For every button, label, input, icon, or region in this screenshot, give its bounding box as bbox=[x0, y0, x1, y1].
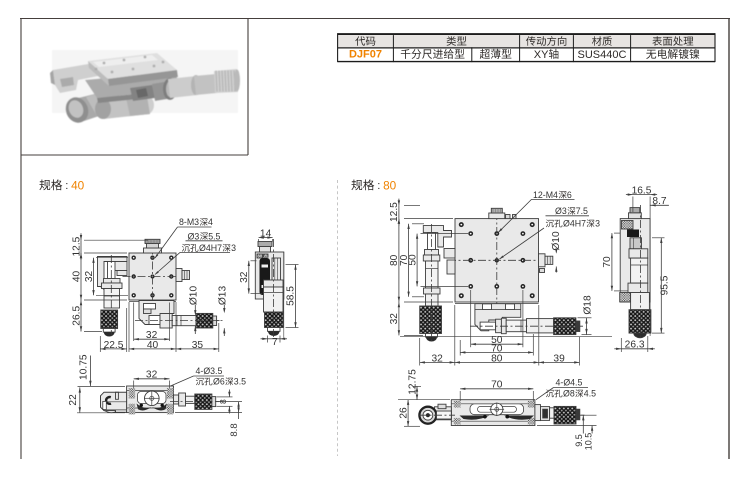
svg-text:Ø13: Ø13 bbox=[218, 286, 229, 306]
svg-text:22: 22 bbox=[68, 394, 79, 406]
svg-text:26: 26 bbox=[398, 407, 409, 419]
svg-text:DJF07: DJF07 bbox=[349, 49, 382, 61]
svg-text:3.5: 3.5 bbox=[234, 377, 246, 387]
svg-text:3: 3 bbox=[595, 219, 600, 229]
svg-text:32: 32 bbox=[432, 353, 444, 364]
svg-text:Ø4H7: Ø4H7 bbox=[199, 243, 222, 253]
svg-text:Ø4H7: Ø4H7 bbox=[563, 219, 586, 229]
svg-text:SUS440C: SUS440C bbox=[578, 49, 627, 61]
svg-text:4.5: 4.5 bbox=[584, 389, 596, 399]
svg-text:22.5: 22.5 bbox=[104, 340, 124, 351]
svg-text:16.5: 16.5 bbox=[632, 186, 652, 197]
svg-text:32: 32 bbox=[146, 370, 158, 381]
svg-text:8.7: 8.7 bbox=[652, 196, 666, 207]
svg-text:95.5: 95.5 bbox=[660, 275, 671, 295]
svg-text:4-Ø3.5: 4-Ø3.5 bbox=[196, 366, 223, 376]
svg-text:80: 80 bbox=[491, 353, 503, 364]
svg-text:70: 70 bbox=[491, 380, 503, 391]
svg-text:40: 40 bbox=[71, 271, 82, 283]
svg-text:32: 32 bbox=[84, 271, 95, 283]
svg-text:32: 32 bbox=[239, 271, 250, 283]
svg-text:70: 70 bbox=[602, 256, 613, 268]
svg-text:Ø3: Ø3 bbox=[555, 206, 567, 216]
svg-text:Ø6: Ø6 bbox=[213, 377, 225, 387]
svg-text:32: 32 bbox=[389, 313, 400, 325]
svg-text:7: 7 bbox=[272, 337, 278, 348]
svg-text:14: 14 bbox=[260, 228, 272, 239]
svg-text:8-M3: 8-M3 bbox=[179, 217, 199, 227]
svg-text:7.5: 7.5 bbox=[576, 206, 588, 216]
svg-text:32: 32 bbox=[146, 330, 158, 341]
svg-text:Ø3: Ø3 bbox=[188, 231, 200, 241]
svg-text:6: 6 bbox=[567, 190, 572, 200]
svg-text:39: 39 bbox=[553, 353, 565, 364]
svg-text:58.5: 58.5 bbox=[286, 286, 297, 306]
svg-text:4: 4 bbox=[208, 217, 213, 227]
svg-text:12-M4: 12-M4 bbox=[533, 190, 558, 200]
svg-text:Ø10: Ø10 bbox=[551, 231, 562, 251]
svg-text:35: 35 bbox=[192, 340, 204, 351]
svg-text:80: 80 bbox=[383, 178, 397, 192]
svg-text:10.5: 10.5 bbox=[583, 433, 593, 451]
svg-text:12.75: 12.75 bbox=[407, 369, 418, 395]
svg-text:5.5: 5.5 bbox=[208, 231, 220, 241]
svg-text:Ø8: Ø8 bbox=[563, 389, 575, 399]
svg-text:10.75: 10.75 bbox=[78, 354, 89, 380]
svg-text::: : bbox=[377, 180, 380, 192]
svg-text:40: 40 bbox=[71, 178, 85, 192]
svg-text:XY: XY bbox=[534, 49, 549, 61]
svg-text:3: 3 bbox=[231, 243, 236, 253]
svg-text:Ø18: Ø18 bbox=[582, 295, 593, 315]
svg-text:Ø10: Ø10 bbox=[189, 286, 200, 306]
svg-text:40: 40 bbox=[147, 340, 159, 351]
svg-text::: : bbox=[65, 180, 68, 192]
svg-text:50: 50 bbox=[407, 254, 418, 266]
svg-text:8.8: 8.8 bbox=[229, 423, 240, 436]
svg-text:4-Ø4.5: 4-Ø4.5 bbox=[556, 377, 583, 387]
svg-text:26.3: 26.3 bbox=[625, 340, 645, 351]
svg-text:26.5: 26.5 bbox=[71, 306, 82, 326]
